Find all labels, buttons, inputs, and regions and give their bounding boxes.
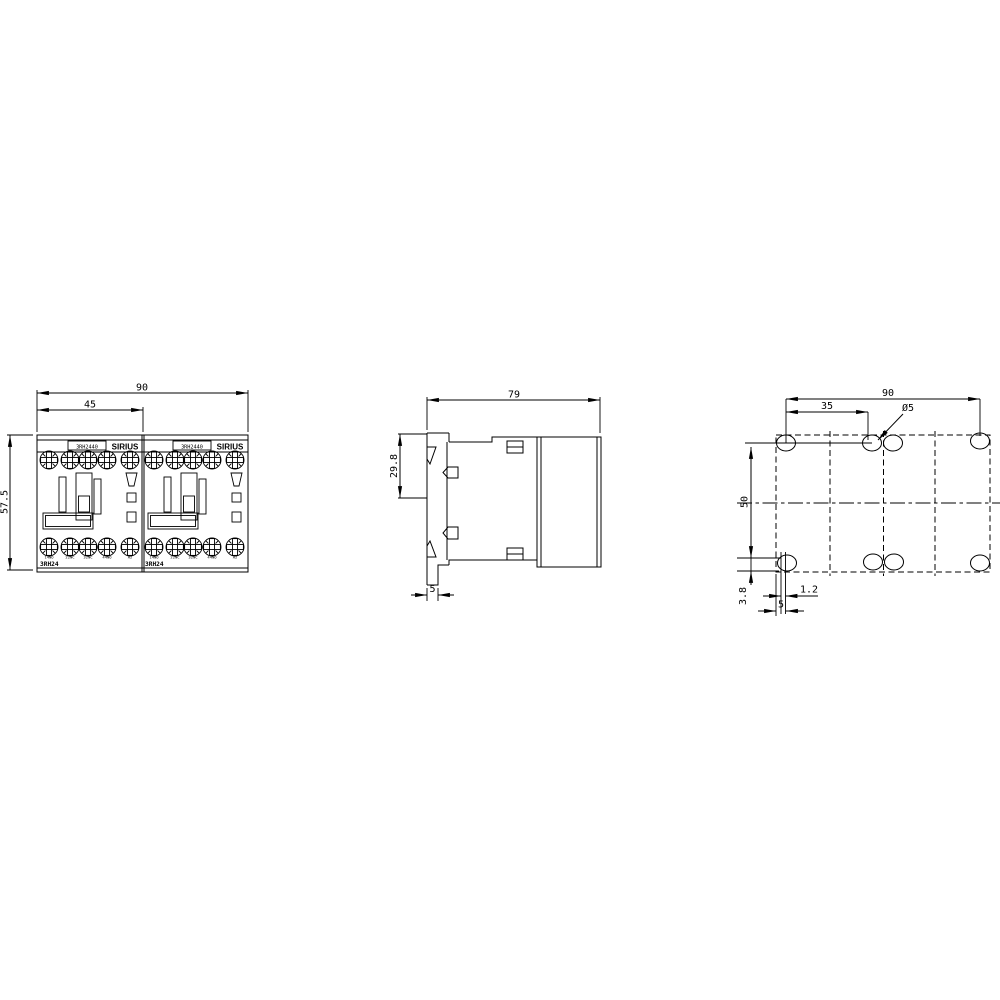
dim-foot-width: 5 — [429, 584, 435, 595]
side-view-drawing: 79 29.8 5 — [380, 380, 620, 610]
side-view-outline — [427, 433, 601, 585]
technical-drawing-page: 3RH2440 SIRIUS — [0, 0, 1000, 1000]
dim-edge-offset: 5 — [778, 600, 784, 611]
dim-vertical-pitch: 50 — [740, 496, 751, 508]
drilling-plan-drawing: 90 35 Ø5 50 3.8 1.2 5 — [720, 360, 1000, 622]
dim-hole-pitch: 35 — [821, 401, 833, 412]
dim-height: 57.5 — [0, 490, 11, 514]
side-dimensions: 79 29.8 5 — [389, 390, 600, 602]
dim-module-width: 45 — [84, 400, 96, 411]
front-view-drawing: 3RH2440 SIRIUS — [0, 370, 270, 605]
drill-dimensions: 90 35 Ø5 50 3.8 1.2 5 — [737, 388, 980, 616]
dim-rail-height: 29.8 — [389, 454, 400, 478]
drill-plan-outline — [737, 431, 1000, 576]
dim-slot-width: 1.2 — [800, 585, 818, 596]
dim-total-width: 90 — [882, 388, 894, 399]
dim-slot-offset: 3.8 — [738, 587, 749, 605]
dim-depth: 79 — [508, 390, 520, 401]
dim-total-width: 90 — [136, 383, 148, 394]
hole-diameter-label: Ø5 — [902, 402, 914, 414]
